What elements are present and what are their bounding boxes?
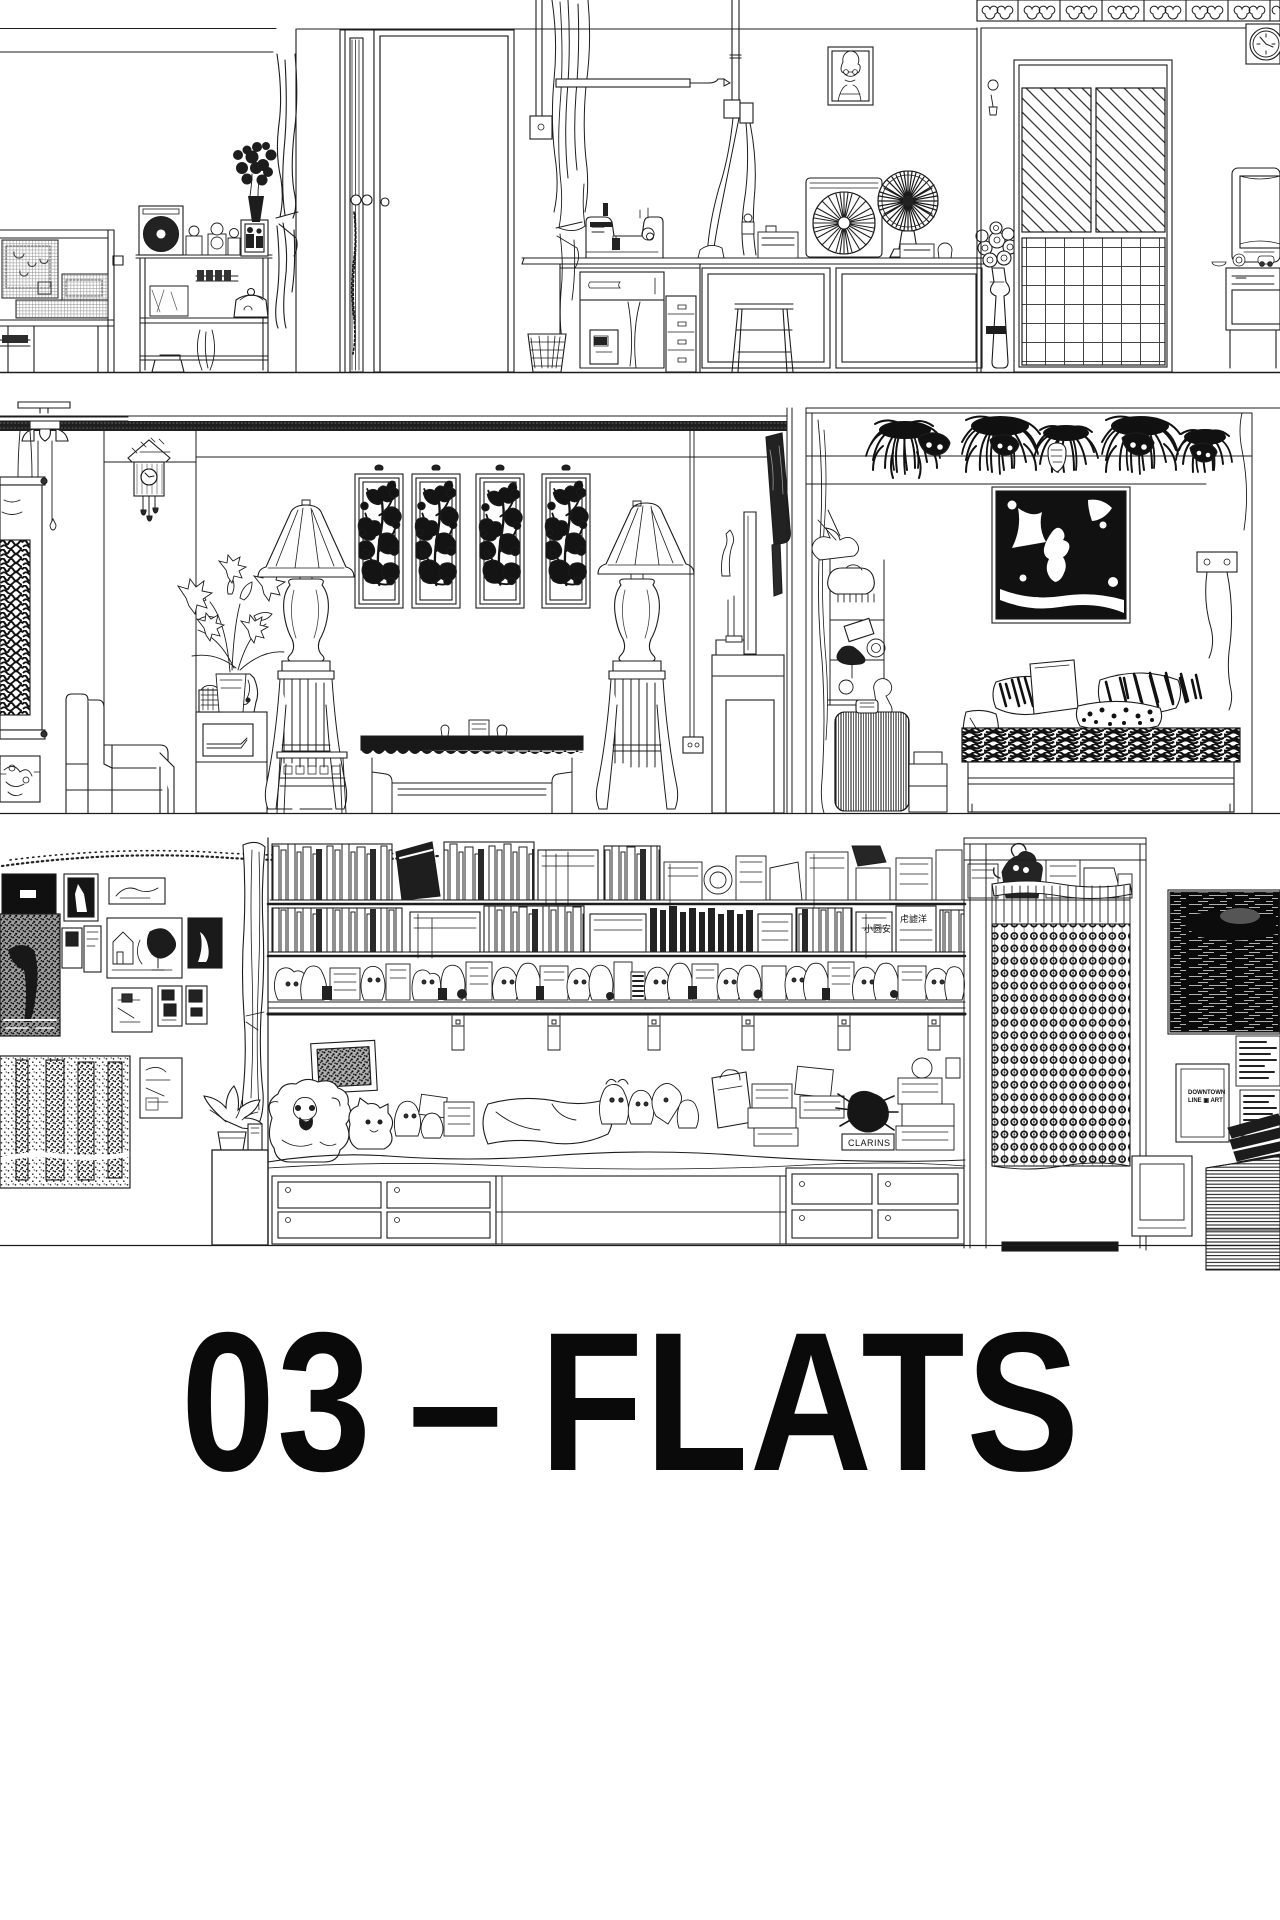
svg-text:CLARINS: CLARINS (848, 1138, 891, 1148)
svg-text:小圆安: 小圆安 (864, 923, 891, 934)
svg-text:03 – FLATS: 03 – FLATS (181, 1291, 1081, 1512)
svg-text:虍譃洋: 虍譃洋 (900, 913, 927, 924)
svg-text:DOWNTOWN: DOWNTOWN (1188, 1090, 1225, 1096)
svg-text:LINE ▣ ART: LINE ▣ ART (1188, 1098, 1223, 1104)
